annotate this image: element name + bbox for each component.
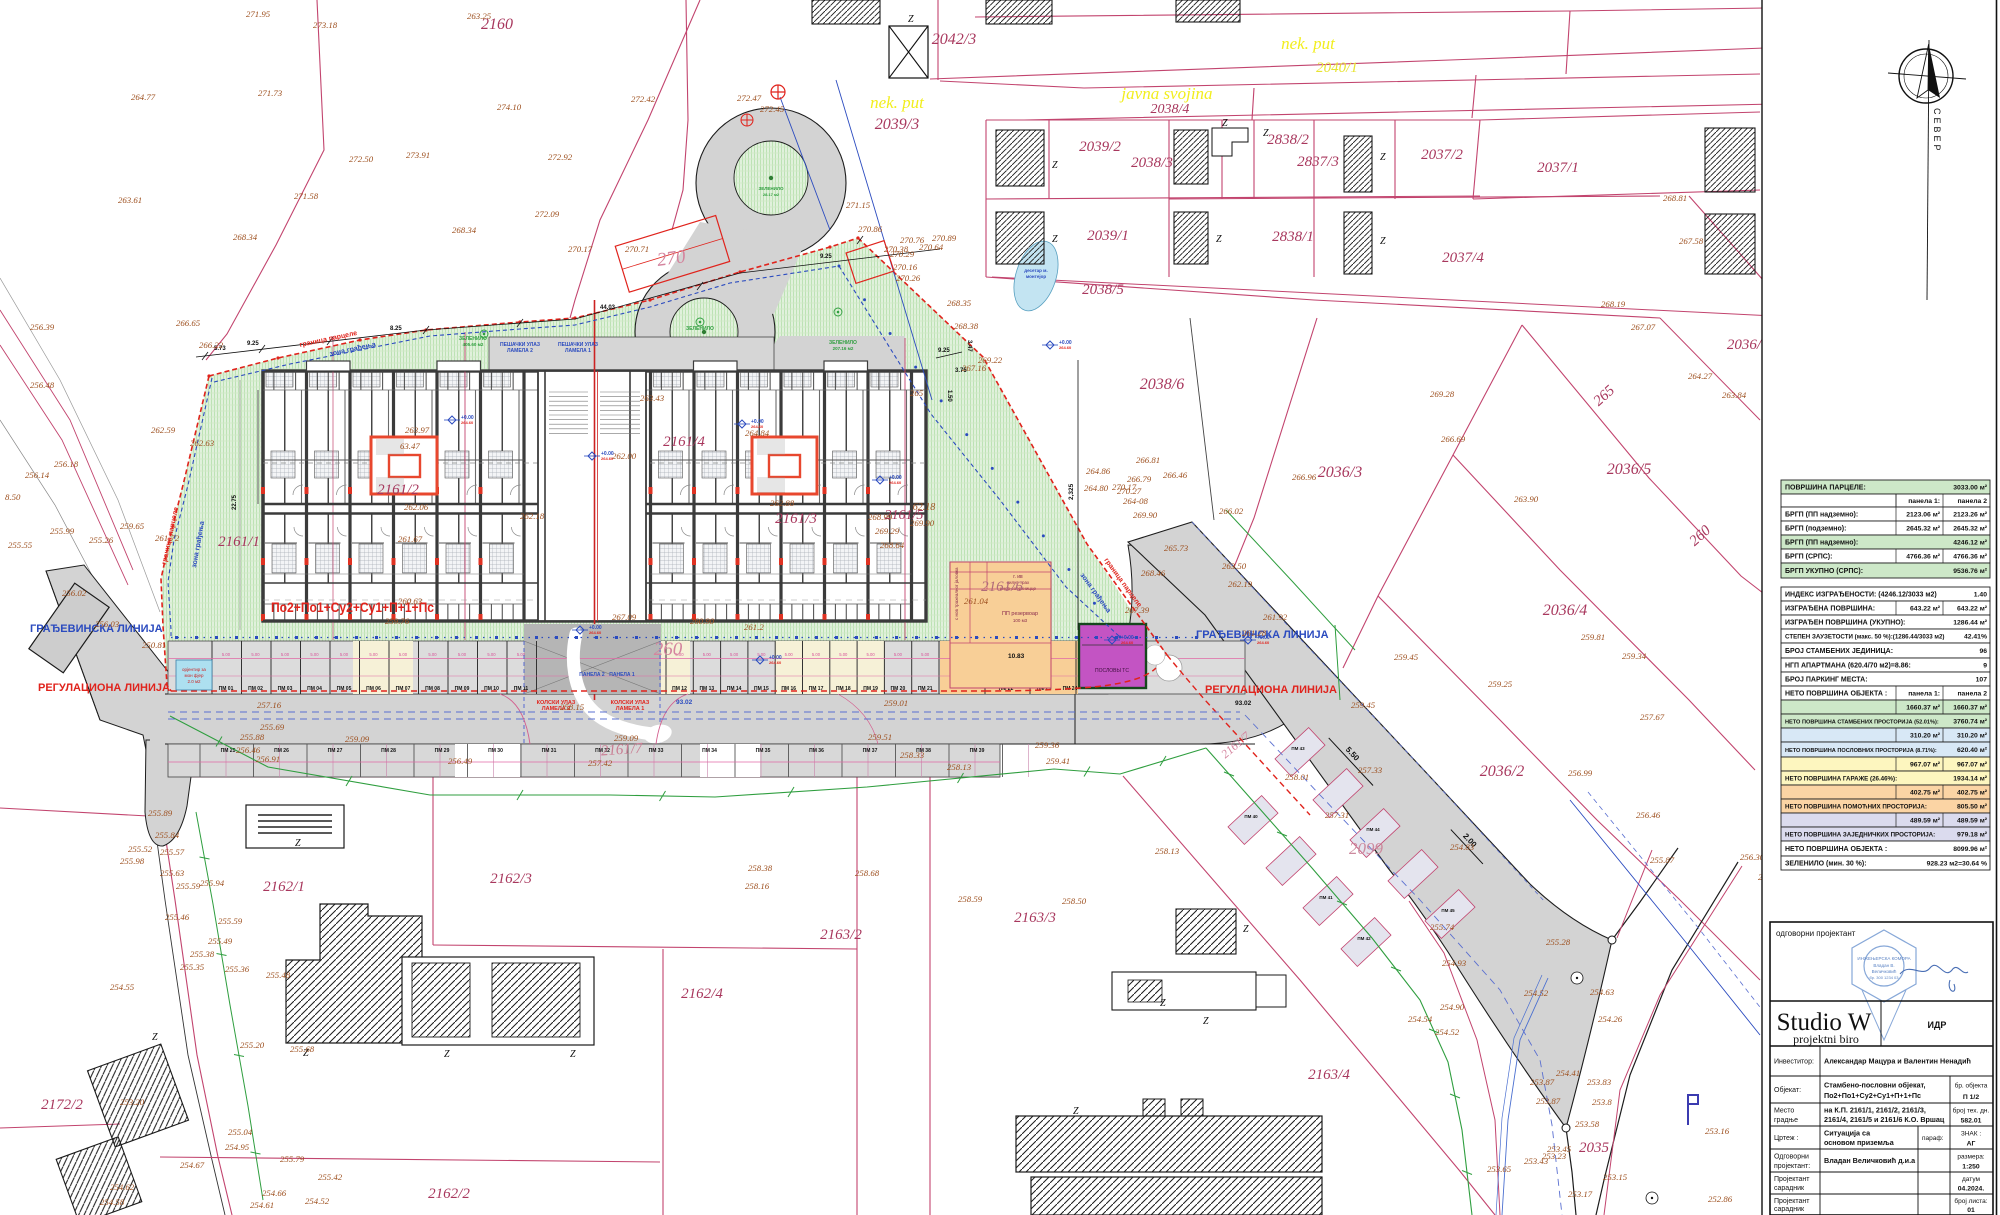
svg-text:ЗНАК :: ЗНАК : xyxy=(1961,1131,1982,1138)
svg-text:СЕВЕР: СЕВЕР xyxy=(1932,108,1942,154)
svg-text:264.60: 264.60 xyxy=(589,630,602,635)
svg-text:643.22 м²: 643.22 м² xyxy=(1910,606,1941,613)
svg-text:268.64: 268.64 xyxy=(880,540,905,550)
svg-text:266.46: 266.46 xyxy=(1163,470,1188,480)
svg-text:253.17: 253.17 xyxy=(1568,1189,1593,1199)
svg-text:253.15: 253.15 xyxy=(1603,1172,1628,1182)
svg-text:РЕГУЛАЦИОНА ЛИНИЈА: РЕГУЛАЦИОНА ЛИНИЈА xyxy=(38,682,170,694)
svg-text:257.31: 257.31 xyxy=(1325,810,1349,820)
svg-text:одговорни пројектант: одговорни пројектант xyxy=(1776,929,1856,938)
svg-text:1286.44 м²: 1286.44 м² xyxy=(1953,620,1987,627)
svg-text:ПМ 31: ПМ 31 xyxy=(542,748,557,754)
svg-text:263.97: 263.97 xyxy=(405,425,430,435)
svg-text:257.33: 257.33 xyxy=(1358,765,1383,775)
svg-text:258.13: 258.13 xyxy=(1155,846,1180,856)
svg-text:258.15: 258.15 xyxy=(560,702,585,712)
svg-text:десетар м.: десетар м. xyxy=(1024,268,1048,273)
svg-text:262.19: 262.19 xyxy=(1228,579,1253,589)
svg-text:255.79: 255.79 xyxy=(280,1154,305,1164)
svg-text:ПМ 35: ПМ 35 xyxy=(756,748,771,754)
svg-text:258.13: 258.13 xyxy=(947,762,972,772)
svg-text:5.00: 5.00 xyxy=(730,652,739,657)
svg-text:262.59: 262.59 xyxy=(151,425,176,435)
svg-text:nek. put: nek. put xyxy=(870,93,925,112)
svg-text:2163/4: 2163/4 xyxy=(1308,1067,1350,1083)
svg-text:8099.96 м²: 8099.96 м² xyxy=(1953,846,1987,853)
svg-text:264.60: 264.60 xyxy=(889,480,902,485)
svg-text:255.99: 255.99 xyxy=(50,526,75,536)
svg-text:270.16: 270.16 xyxy=(893,262,918,272)
svg-text:489.59 м²: 489.59 м² xyxy=(1910,818,1941,825)
svg-text:2162/4: 2162/4 xyxy=(681,986,723,1002)
svg-text:5.00: 5.00 xyxy=(757,652,766,657)
svg-text:2042/3: 2042/3 xyxy=(932,31,976,48)
svg-text:ПМ 30: ПМ 30 xyxy=(488,748,503,754)
svg-text:264.60: 264.60 xyxy=(1121,640,1134,645)
svg-text:Пројектант: Пројектант xyxy=(1774,1198,1810,1205)
svg-text:nek. put: nek. put xyxy=(1281,34,1336,53)
svg-text:Z: Z xyxy=(1380,152,1386,163)
svg-text:Стамбено-пословни објекат,: Стамбено-пословни објекат, xyxy=(1824,1080,1926,1089)
svg-text:270.27: 270.27 xyxy=(1117,486,1142,496)
svg-text:272.42: 272.42 xyxy=(631,94,656,104)
svg-text:265: 265 xyxy=(910,388,924,398)
svg-text:261.72: 261.72 xyxy=(155,533,180,543)
svg-text:643.22 м²: 643.22 м² xyxy=(1957,606,1988,613)
svg-text:БРГП (ПП надземно):: БРГП (ПП надземно): xyxy=(1785,540,1858,547)
svg-text:253.20: 253.20 xyxy=(120,1097,145,1107)
svg-text:402.75 м²: 402.75 м² xyxy=(1957,790,1988,797)
svg-text:Z: Z xyxy=(1052,160,1058,171)
svg-text:НЕТО ПОВРШИНА ОБЈЕКТА :: НЕТО ПОВРШИНА ОБЈЕКТА : xyxy=(1785,846,1887,853)
svg-text:259.25: 259.25 xyxy=(1488,679,1513,689)
svg-text:253.65: 253.65 xyxy=(1487,1164,1512,1174)
svg-text:2161/7: 2161/7 xyxy=(600,740,644,759)
svg-text:271.15: 271.15 xyxy=(846,200,871,210)
svg-text:264.60: 264.60 xyxy=(1257,640,1270,645)
svg-text:2037/1: 2037/1 xyxy=(1537,160,1579,176)
svg-text:1.40: 1.40 xyxy=(1974,592,1987,599)
svg-text:9: 9 xyxy=(1983,663,1987,670)
svg-text:ЗЕЛЕНИЛО: ЗЕЛЕНИЛО xyxy=(758,186,784,191)
svg-text:Александар Мацура и Валентин Н: Александар Мацура и Валентин Ненадић xyxy=(1824,1057,1971,1066)
svg-text:266.22: 266.22 xyxy=(199,340,224,350)
svg-text:2036/3: 2036/3 xyxy=(1318,464,1362,481)
svg-text:Z: Z xyxy=(1052,234,1058,245)
svg-text:254.63: 254.63 xyxy=(1590,987,1615,997)
svg-text:Z: Z xyxy=(295,838,301,849)
svg-text:254.67: 254.67 xyxy=(180,1160,205,1170)
svg-text:256.46: 256.46 xyxy=(1636,810,1661,820)
svg-text:панела 2: панела 2 xyxy=(1957,498,1987,505)
svg-text:258.68: 258.68 xyxy=(855,868,880,878)
svg-text:405.60 м2: 405.60 м2 xyxy=(463,342,484,347)
svg-text:620.40 м²: 620.40 м² xyxy=(1957,747,1988,754)
svg-text:253.58: 253.58 xyxy=(1575,1119,1600,1129)
svg-text:255.68: 255.68 xyxy=(290,1044,315,1054)
svg-text:5.00: 5.00 xyxy=(839,652,848,657)
svg-text:256.02: 256.02 xyxy=(62,588,87,598)
svg-text:271.58: 271.58 xyxy=(294,191,319,201)
svg-text:ПАНЕЛА 1: ПАНЕЛА 1 xyxy=(609,672,635,678)
svg-text:260.90: 260.90 xyxy=(690,616,715,626)
svg-text:5.00: 5.00 xyxy=(222,652,231,657)
svg-text:2037/2: 2037/2 xyxy=(1421,147,1463,163)
svg-text:255.89: 255.89 xyxy=(148,808,173,818)
svg-text:10.83: 10.83 xyxy=(1008,653,1025,660)
svg-text:263.84: 263.84 xyxy=(1722,390,1747,400)
svg-text:259.51: 259.51 xyxy=(868,732,892,742)
svg-text:БРОЈ СТАМБЕНИХ ЈЕДИНИЦА:: БРОЈ СТАМБЕНИХ ЈЕДИНИЦА: xyxy=(1785,648,1893,655)
svg-text:бр. објекта: бр. објекта xyxy=(1955,1081,1988,1089)
svg-text:262.88: 262.88 xyxy=(770,498,795,508)
svg-text:253.16: 253.16 xyxy=(1705,1126,1730,1136)
svg-text:271.73: 271.73 xyxy=(258,88,283,98)
svg-text:2163/3: 2163/3 xyxy=(1014,910,1056,926)
svg-text:266.69: 266.69 xyxy=(1441,434,1466,444)
svg-text:967.07 м²: 967.07 м² xyxy=(1910,762,1941,769)
svg-text:2035: 2035 xyxy=(1579,1140,1610,1156)
svg-text:Објекат:: Објекат: xyxy=(1774,1086,1801,1094)
svg-text:НГП АПАРТМАНА (620.4/70 м2)=8.: НГП АПАРТМАНА (620.4/70 м2)=8.86: xyxy=(1785,663,1911,670)
svg-text:254.62: 254.62 xyxy=(110,1182,135,1192)
svg-text:259.36: 259.36 xyxy=(1035,740,1060,750)
svg-text:255.59: 255.59 xyxy=(218,916,243,926)
svg-text:Z: Z xyxy=(908,14,914,25)
svg-text:2172/2: 2172/2 xyxy=(41,1097,83,1113)
svg-text:2039/2: 2039/2 xyxy=(1079,139,1121,155)
svg-text:273.91: 273.91 xyxy=(406,150,430,160)
svg-text:Владан Величковић д.и.а: Владан Величковић д.и.а xyxy=(1824,1156,1916,1165)
svg-text:2161/2: 2161/2 xyxy=(377,482,419,498)
svg-text:ПМ 41: ПМ 41 xyxy=(1319,895,1333,900)
svg-text:датум: датум xyxy=(1962,1176,1980,1183)
svg-text:402.75 м²: 402.75 м² xyxy=(1910,790,1941,797)
svg-text:2036/: 2036/ xyxy=(1727,337,1763,353)
svg-text:255.52: 255.52 xyxy=(128,844,153,854)
svg-text:250.81: 250.81 xyxy=(142,640,166,650)
svg-text:панела 1:: панела 1: xyxy=(1908,691,1940,698)
svg-text:255.63: 255.63 xyxy=(160,868,185,878)
svg-text:264-08: 264-08 xyxy=(1123,496,1149,506)
svg-text:254.52: 254.52 xyxy=(305,1196,330,1206)
svg-text:270: 270 xyxy=(656,246,688,271)
svg-text:255.84: 255.84 xyxy=(155,830,180,840)
svg-text:93.02: 93.02 xyxy=(1235,700,1252,707)
svg-text:ПМ 44: ПМ 44 xyxy=(1366,827,1380,832)
svg-text:ПМ 36: ПМ 36 xyxy=(809,748,824,754)
svg-text:НЕТО ПОВРШИНА ГАРАЖЕ (26.46%):: НЕТО ПОВРШИНА ГАРАЖЕ (26.46%): xyxy=(1785,776,1897,783)
svg-text:928.23 м2=30.64 %: 928.23 м2=30.64 % xyxy=(1927,861,1987,868)
svg-text:267.58: 267.58 xyxy=(1679,236,1704,246)
svg-text:2,325: 2,325 xyxy=(1068,483,1075,500)
svg-text:Z: Z xyxy=(1203,1016,1209,1027)
svg-text:сарадник: сарадник xyxy=(1774,1185,1805,1192)
svg-text:Z: Z xyxy=(1073,1106,1079,1117)
svg-text:259.76: 259.76 xyxy=(385,616,410,626)
svg-text:монтејор: монтејор xyxy=(1026,274,1046,279)
svg-text:Величковић: Величковић xyxy=(1872,969,1897,974)
svg-text:5.00: 5.00 xyxy=(369,652,378,657)
svg-text:582.01: 582.01 xyxy=(1961,1118,1982,1125)
svg-text:254.52: 254.52 xyxy=(1435,1027,1460,1037)
svg-text:255.20: 255.20 xyxy=(240,1040,265,1050)
svg-text:256.03: 256.03 xyxy=(95,619,120,629)
svg-text:310.20 м²: 310.20 м² xyxy=(1957,733,1988,740)
svg-text:javna svojina: javna svojina xyxy=(1119,84,1212,103)
svg-text:269.28: 269.28 xyxy=(1430,389,1455,399)
svg-text:264.60: 264.60 xyxy=(769,660,782,665)
svg-text:1660.37 м²: 1660.37 м² xyxy=(1953,705,1987,712)
svg-text:2162/1: 2162/1 xyxy=(263,879,305,895)
svg-text:255.98: 255.98 xyxy=(120,856,145,866)
svg-text:979.18 м²: 979.18 м² xyxy=(1957,832,1988,839)
svg-text:264.86: 264.86 xyxy=(1086,466,1111,476)
svg-text:панела 2: панела 2 xyxy=(1957,691,1987,698)
svg-text:255.42: 255.42 xyxy=(318,1172,343,1182)
svg-text:9536.76 м²: 9536.76 м² xyxy=(1953,568,1987,575)
svg-text:270.64: 270.64 xyxy=(919,242,944,252)
svg-text:254.66: 254.66 xyxy=(262,1188,287,1198)
svg-text:263.43: 263.43 xyxy=(640,393,665,403)
svg-text:БРГП (ПП надземно):: БРГП (ПП надземно): xyxy=(1785,512,1858,519)
svg-text:255.74: 255.74 xyxy=(1430,922,1455,932)
svg-text:261.2: 261.2 xyxy=(744,622,764,632)
svg-text:255.28: 255.28 xyxy=(1546,937,1571,947)
svg-text:268.81: 268.81 xyxy=(1663,193,1687,203)
svg-text:3033.00 м²: 3033.00 м² xyxy=(1953,485,1987,492)
svg-text:2038/6: 2038/6 xyxy=(1140,376,1184,393)
svg-text:СТЕПЕН ЗАУЗЕТОСТИ (макс. 50 %): СТЕПЕН ЗАУЗЕТОСТИ (макс. 50 %):(1286.44/… xyxy=(1785,634,1944,641)
svg-text:270.71: 270.71 xyxy=(625,244,649,254)
svg-text:5.00: 5.00 xyxy=(812,652,821,657)
svg-text:2645.32 м²: 2645.32 м² xyxy=(1953,526,1987,533)
svg-text:ПМ 42: ПМ 42 xyxy=(1357,936,1371,941)
svg-text:253.87: 253.87 xyxy=(1536,1096,1561,1106)
svg-text:број листа:: број листа: xyxy=(1954,1197,1987,1205)
svg-text:сарадник: сарадник xyxy=(1774,1206,1805,1213)
svg-text:107: 107 xyxy=(1976,677,1988,684)
svg-text:264.60: 264.60 xyxy=(751,424,764,429)
svg-text:259.01: 259.01 xyxy=(884,698,908,708)
svg-text:255.49: 255.49 xyxy=(208,936,233,946)
svg-text:2037/4: 2037/4 xyxy=(1442,250,1484,266)
svg-text:пројектант:: пројектант: xyxy=(1774,1163,1810,1170)
svg-text:Z: Z xyxy=(152,1032,158,1043)
svg-text:266.96: 266.96 xyxy=(1292,472,1317,482)
svg-text:2123.06 м²: 2123.06 м² xyxy=(1906,512,1940,519)
svg-text:259.45: 259.45 xyxy=(1351,700,1376,710)
svg-text:268.34: 268.34 xyxy=(452,225,477,235)
svg-text:255.04: 255.04 xyxy=(228,1127,253,1137)
svg-text:2161/4, 2161/5 и 2161/6 К.О. В: 2161/4, 2161/5 и 2161/6 К.О. Вршац xyxy=(1824,1115,1945,1124)
svg-text:261.67: 261.67 xyxy=(398,534,423,544)
svg-text:градње: градње xyxy=(1774,1117,1798,1124)
svg-text:207.16 м2: 207.16 м2 xyxy=(833,346,854,351)
svg-text:Z: Z xyxy=(444,1049,450,1060)
svg-text:256.48: 256.48 xyxy=(30,380,55,390)
svg-text:260.63: 260.63 xyxy=(398,596,423,606)
svg-text:2837/3: 2837/3 xyxy=(1297,154,1339,170)
svg-text:63.47: 63.47 xyxy=(400,441,420,451)
svg-text:По2+По1+Су2+Су1+П+1+Пс: По2+По1+Су2+Су1+П+1+Пс xyxy=(1824,1091,1921,1100)
svg-text:Z: Z xyxy=(570,1049,576,1060)
svg-text:П 1/2: П 1/2 xyxy=(1963,1094,1979,1101)
svg-text:256.99: 256.99 xyxy=(1568,768,1593,778)
svg-text:5.00: 5.00 xyxy=(281,652,290,657)
svg-text:параф:: параф: xyxy=(1922,1135,1944,1142)
svg-text:1:250: 1:250 xyxy=(1962,1164,1980,1171)
svg-text:100 м3: 100 м3 xyxy=(1013,618,1028,623)
svg-text:ИНДЕКС ИЗГРАЂЕНОСТИ: (4246.12/: ИНДЕКС ИЗГРАЂЕНОСТИ: (4246.12/3033 м2) xyxy=(1785,592,1937,599)
svg-text:НЕТО ПОВРШИНА ОБЈЕКТА :: НЕТО ПОВРШИНА ОБЈЕКТА : xyxy=(1785,691,1887,698)
svg-text:9.25: 9.25 xyxy=(247,341,259,347)
svg-text:255.35: 255.35 xyxy=(180,962,205,972)
svg-text:ЛАМЕЛА 1: ЛАМЕЛА 1 xyxy=(616,706,645,712)
svg-text:42.41%: 42.41% xyxy=(1964,634,1987,641)
svg-text:274.10: 274.10 xyxy=(497,102,522,112)
svg-text:5.00: 5.00 xyxy=(703,652,712,657)
svg-text:ПМ 28: ПМ 28 xyxy=(381,748,396,754)
svg-text:267.07: 267.07 xyxy=(1631,322,1656,332)
svg-text:9.25: 9.25 xyxy=(820,254,832,260)
svg-text:НЕТО ПОВРШИНА ПОМОЋНИХ ПРОСТОР: НЕТО ПОВРШИНА ПОМОЋНИХ ПРОСТОРИЈА: xyxy=(1785,804,1927,811)
svg-text:268.35: 268.35 xyxy=(947,298,972,308)
svg-text:260: 260 xyxy=(654,639,683,660)
svg-text:254.52: 254.52 xyxy=(1524,988,1549,998)
svg-text:253.8: 253.8 xyxy=(1592,1097,1612,1107)
svg-text:265.73: 265.73 xyxy=(1164,543,1189,553)
svg-text:НЕТО ПОВРШИНА ПОСЛОВНИХ ПРОСТО: НЕТО ПОВРШИНА ПОСЛОВНИХ ПРОСТОРИЈА (8.71… xyxy=(1785,748,1937,754)
svg-text:ЛАМЕЛА 1: ЛАМЕЛА 1 xyxy=(565,348,591,354)
svg-text:255.69: 255.69 xyxy=(260,722,285,732)
svg-text:267.39: 267.39 xyxy=(1125,605,1150,615)
svg-text:262.63: 262.63 xyxy=(190,438,215,448)
svg-text:04.2024.: 04.2024. xyxy=(1958,1186,1985,1193)
svg-text:5.00: 5.00 xyxy=(399,652,408,657)
svg-text:254.41: 254.41 xyxy=(1556,1068,1580,1078)
svg-text:255.87: 255.87 xyxy=(1650,855,1675,865)
svg-text:264.84: 264.84 xyxy=(745,428,770,438)
svg-text:2.0 м2: 2.0 м2 xyxy=(187,679,201,684)
svg-text:5.00: 5.00 xyxy=(894,652,903,657)
svg-text:255.36: 255.36 xyxy=(225,964,250,974)
svg-text:БРГП (СРПС):: БРГП (СРПС): xyxy=(1785,554,1832,561)
svg-text:259.45: 259.45 xyxy=(1394,652,1419,662)
svg-text:НЕТО ПОВРШИНА СТАМБЕНИХ ПРОСТО: НЕТО ПОВРШИНА СТАМБЕНИХ ПРОСТОРИЈА (52.0… xyxy=(1785,720,1939,726)
svg-text:262.18: 262.18 xyxy=(520,511,545,521)
svg-text:панела 1:: панела 1: xyxy=(1908,498,1940,505)
svg-text:2036/5: 2036/5 xyxy=(1607,461,1651,478)
svg-text:2038/4: 2038/4 xyxy=(1151,102,1190,117)
svg-text:5.00: 5.00 xyxy=(921,652,930,657)
svg-text:256.30: 256.30 xyxy=(1740,852,1765,862)
svg-text:264.60: 264.60 xyxy=(1059,345,1072,350)
svg-text:Инвеститор:: Инвеститор: xyxy=(1774,1059,1814,1066)
svg-text:АГ: АГ xyxy=(1967,1141,1976,1148)
svg-text:310.20 м²: 310.20 м² xyxy=(1910,733,1941,740)
svg-text:ПП резервоар: ПП резервоар xyxy=(1002,611,1038,617)
svg-text:254.61: 254.61 xyxy=(250,1200,274,1210)
svg-text:271.95: 271.95 xyxy=(246,9,271,19)
svg-text:5.00: 5.00 xyxy=(428,652,437,657)
svg-text:805.50 м²: 805.50 м² xyxy=(1957,804,1988,811)
svg-text:22.75: 22.75 xyxy=(232,494,238,510)
svg-text:Ситуација са: Ситуација са xyxy=(1824,1129,1871,1138)
svg-text:253.87: 253.87 xyxy=(1530,1077,1555,1087)
svg-text:255.46: 255.46 xyxy=(165,912,190,922)
svg-text:5.00: 5.00 xyxy=(785,652,794,657)
svg-text:3760.74 м²: 3760.74 м² xyxy=(1953,719,1987,726)
svg-text:28.17 м2: 28.17 м2 xyxy=(763,192,780,197)
svg-text:254.58: 254.58 xyxy=(100,1197,125,1207)
svg-text:2123.26 м²: 2123.26 м² xyxy=(1953,512,1987,519)
svg-text:2162/3: 2162/3 xyxy=(490,871,532,887)
svg-text:258.16: 258.16 xyxy=(745,881,770,891)
svg-text:ПОСЛОВЫ ТС: ПОСЛОВЫ ТС xyxy=(1095,668,1129,674)
svg-text:255.59: 255.59 xyxy=(176,881,201,891)
svg-text:ПМ 34: ПМ 34 xyxy=(702,748,717,754)
svg-text:264.80: 264.80 xyxy=(1084,483,1109,493)
svg-text:255.55: 255.55 xyxy=(8,540,33,550)
svg-text:4246.12 м²: 4246.12 м² xyxy=(1953,540,1987,547)
svg-text:270.29: 270.29 xyxy=(890,249,915,259)
svg-text:967.07 м²: 967.07 м² xyxy=(1957,762,1988,769)
svg-text:259.34: 259.34 xyxy=(1622,651,1647,661)
svg-text:основом приземља: основом приземља xyxy=(1824,1138,1895,1147)
svg-text:252.86: 252.86 xyxy=(1708,1194,1733,1204)
svg-text:272.45: 272.45 xyxy=(760,104,785,114)
svg-text:258.33: 258.33 xyxy=(900,750,925,760)
svg-text:број тех. дн.: број тех. дн. xyxy=(1953,1107,1990,1115)
svg-text:ПМ 39: ПМ 39 xyxy=(970,748,985,754)
svg-text:ПМ 27: ПМ 27 xyxy=(328,748,343,754)
svg-text:270.86: 270.86 xyxy=(858,224,883,234)
svg-text:ПМ 37: ПМ 37 xyxy=(863,748,878,754)
svg-text:266.79: 266.79 xyxy=(1127,474,1152,484)
svg-text:254.55: 254.55 xyxy=(110,982,135,992)
svg-text:2161/1: 2161/1 xyxy=(218,534,260,550)
svg-text:258.38: 258.38 xyxy=(748,863,773,873)
svg-text:01: 01 xyxy=(1967,1207,1975,1214)
svg-text:ИЗГРАЂЕН ПОВРШИНА (УКУПНО):: ИЗГРАЂЕН ПОВРШИНА (УКУПНО): xyxy=(1785,620,1905,627)
svg-text:254.90: 254.90 xyxy=(1440,1002,1465,1012)
svg-text:262.00: 262.00 xyxy=(612,451,637,461)
svg-text:489.59 м²: 489.59 м² xyxy=(1957,818,1988,825)
svg-text:2838/1: 2838/1 xyxy=(1272,229,1314,245)
svg-text:257.16: 257.16 xyxy=(257,700,282,710)
svg-text:с нов трахеалног јаловка: с нов трахеалног јаловка xyxy=(954,567,959,620)
svg-text:258.50: 258.50 xyxy=(1062,896,1087,906)
svg-text:Z: Z xyxy=(1380,236,1386,247)
svg-text:270.17: 270.17 xyxy=(568,244,593,254)
svg-text:ИДР: ИДР xyxy=(1928,1020,1947,1030)
svg-text:257.67: 257.67 xyxy=(1640,712,1665,722)
svg-text:Z: Z xyxy=(1222,118,1228,129)
svg-text:2038/5: 2038/5 xyxy=(1082,282,1124,298)
svg-text:5.00: 5.00 xyxy=(251,652,260,657)
svg-text:264.77: 264.77 xyxy=(131,92,156,102)
svg-text:НЕТО ПОВРШИНА ЗАЈЕДНИЧКИХ ПРОС: НЕТО ПОВРШИНА ЗАЈЕДНИЧКИХ ПРОСТОРИЈА: xyxy=(1785,832,1935,839)
svg-text:258.59: 258.59 xyxy=(958,894,983,904)
svg-text:2036/4: 2036/4 xyxy=(1543,602,1587,619)
svg-text:2038/3: 2038/3 xyxy=(1131,155,1173,171)
svg-text:272.50: 272.50 xyxy=(349,154,374,164)
svg-text:266.02: 266.02 xyxy=(1219,506,1244,516)
svg-text:264.27: 264.27 xyxy=(1688,371,1713,381)
svg-text:269.29: 269.29 xyxy=(875,526,900,536)
svg-text:259.81: 259.81 xyxy=(1581,632,1605,642)
